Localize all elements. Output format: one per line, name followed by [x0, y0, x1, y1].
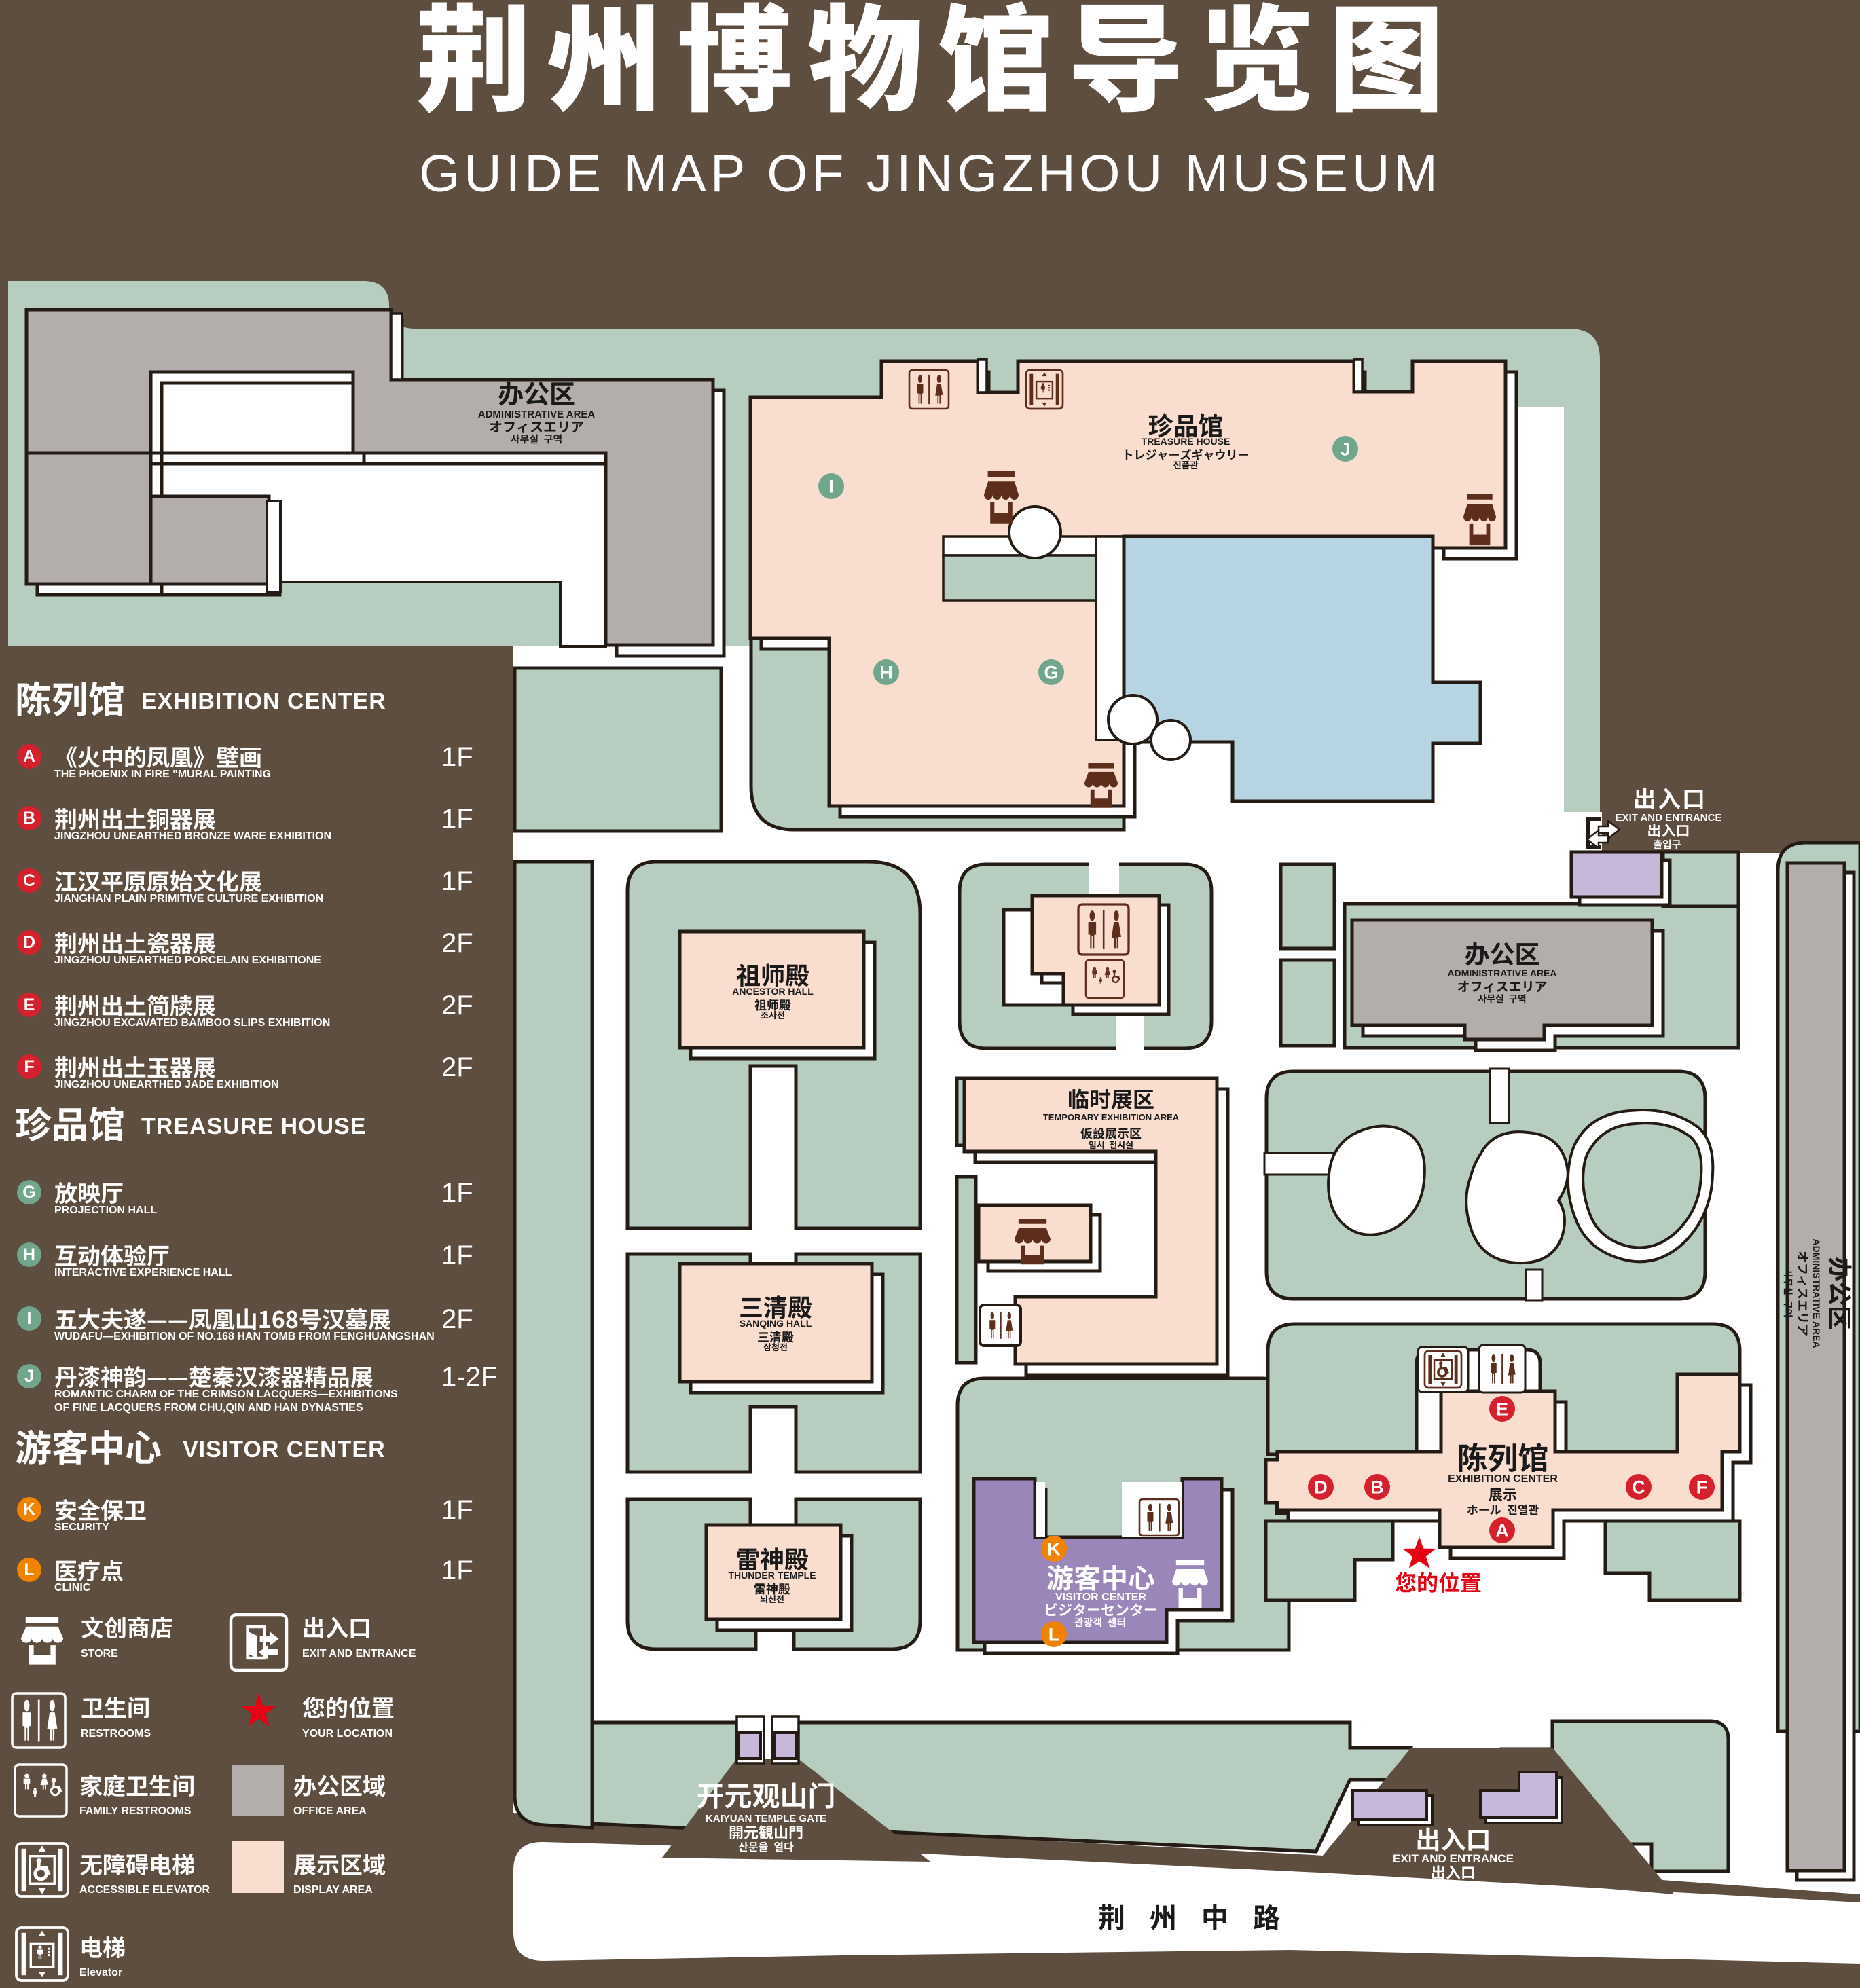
svg-text:1F: 1F [441, 1495, 473, 1525]
svg-text:ADMINISTRATIVE AREA: ADMINISTRATIVE AREA [478, 409, 596, 420]
svg-text:A: A [1495, 1520, 1509, 1541]
svg-text:K: K [23, 1500, 35, 1519]
svg-text:JINGZHOU EXCAVATED BAMBOO SLIP: JINGZHOU EXCAVATED BAMBOO SLIPS EXHIBITI… [54, 1017, 330, 1029]
svg-text:I: I [27, 1309, 32, 1328]
svg-text:JINGZHOU UNEARTHED JADE EXHIBI: JINGZHOU UNEARTHED JADE EXHIBITION [54, 1079, 279, 1090]
svg-text:1F: 1F [441, 742, 473, 772]
svg-text:STORE: STORE [81, 1648, 118, 1659]
svg-text:F: F [24, 1057, 34, 1076]
svg-text:YOUR LOCATION: YOUR LOCATION [302, 1728, 393, 1739]
svg-text:WUDAFU—EXHIBITION OF NO.168 HA: WUDAFU—EXHIBITION OF NO.168 HAN TOMB FRO… [54, 1331, 435, 1342]
svg-text:VISITOR CENTER: VISITOR CENTER [183, 1437, 386, 1462]
svg-text:1F: 1F [441, 1240, 473, 1270]
svg-text:K: K [1047, 1539, 1061, 1559]
svg-text:I: I [828, 476, 834, 496]
svg-text:C: C [1632, 1477, 1645, 1497]
svg-text:B: B [23, 809, 35, 828]
svg-text:SECURITY: SECURITY [54, 1522, 109, 1533]
svg-text:D: D [1314, 1477, 1328, 1497]
svg-text:ROMANTIC CHARM OF THE CRIMSON: ROMANTIC CHARM OF THE CRIMSON LACQUERS—E… [54, 1388, 398, 1400]
svg-text:H: H [879, 662, 893, 682]
svg-text:1F: 1F [441, 804, 473, 834]
svg-text:A: A [23, 747, 35, 766]
svg-text:H: H [23, 1245, 35, 1264]
svg-text:OFFICE AREA: OFFICE AREA [293, 1805, 367, 1817]
svg-text:2F: 2F [441, 1052, 473, 1082]
svg-text:KAIYUAN TEMPLE GATE: KAIYUAN TEMPLE GATE [706, 1813, 826, 1824]
svg-text:EXHIBITION CENTER: EXHIBITION CENTER [141, 688, 386, 714]
svg-text:E: E [24, 995, 35, 1014]
svg-text:EXIT AND ENTRANCE: EXIT AND ENTRANCE [1393, 1852, 1514, 1865]
svg-text:RESTROOMS: RESTROOMS [81, 1728, 151, 1739]
svg-text:GUIDE MAP OF JINGZHOU MUSEUM: GUIDE MAP OF JINGZHOU MUSEUM [419, 145, 1442, 203]
svg-text:OF FINE LACQUERS FROM CHU,QIN: OF FINE LACQUERS FROM CHU,QIN AND HAN DY… [54, 1402, 363, 1414]
svg-text:EXIT AND ENTRANCE: EXIT AND ENTRANCE [1616, 812, 1722, 824]
svg-text:D: D [23, 933, 35, 952]
svg-text:TREASURE HOUSE: TREASURE HOUSE [141, 1113, 366, 1139]
svg-text:PROJECTION HALL: PROJECTION HALL [54, 1204, 157, 1216]
svg-text:ADMINISTRATIVE AREA: ADMINISTRATIVE AREA [1811, 1239, 1822, 1348]
svg-text:CLINIC: CLINIC [54, 1582, 91, 1594]
svg-text:C: C [23, 871, 35, 890]
svg-text:DISPLAY AREA: DISPLAY AREA [293, 1884, 373, 1896]
svg-text:FAMILY RESTROOMS: FAMILY RESTROOMS [79, 1805, 192, 1817]
svg-text:J: J [24, 1367, 34, 1386]
svg-text:JINGZHOU UNEARTHED BRONZE WARE: JINGZHOU UNEARTHED BRONZE WARE EXHIBITIO… [54, 830, 331, 842]
svg-text:J: J [1340, 439, 1350, 459]
svg-text:THUNDER TEMPLE: THUNDER TEMPLE [728, 1570, 816, 1581]
svg-text:1F: 1F [441, 1178, 473, 1208]
svg-text:ADMINISTRATIVE AREA: ADMINISTRATIVE AREA [1448, 968, 1557, 978]
svg-text:VISITOR CENTER: VISITOR CENTER [1055, 1591, 1146, 1603]
svg-text:B: B [1370, 1477, 1384, 1497]
svg-text:2F: 2F [441, 991, 473, 1020]
svg-text:E: E [1496, 1399, 1508, 1419]
svg-text:G: G [1044, 662, 1058, 682]
svg-text:EXIT AND ENTRANCE: EXIT AND ENTRANCE [302, 1648, 416, 1659]
svg-text:1F: 1F [441, 1556, 473, 1585]
svg-text:TEMPORARY EXHIBITION AREA: TEMPORARY EXHIBITION AREA [1043, 1112, 1180, 1122]
svg-text:1-2F: 1-2F [441, 1362, 497, 1392]
svg-text:JIANGHAN PLAIN PRIMITIVE CULTU: JIANGHAN PLAIN PRIMITIVE CULTURE EXHIBIT… [54, 893, 323, 904]
svg-text:2F: 2F [441, 1304, 473, 1334]
svg-text:SANQING HALL: SANQING HALL [740, 1318, 812, 1329]
svg-text:THE PHOENIX IN FIRE "MURAL PAI: THE PHOENIX IN FIRE "MURAL PAINTING [54, 769, 271, 780]
svg-text:INTERACTIVE EXPERIENCE HALL: INTERACTIVE EXPERIENCE HALL [54, 1267, 232, 1278]
svg-text:2F: 2F [441, 928, 473, 958]
svg-text:ANCESTOR HALL: ANCESTOR HALL [732, 986, 814, 997]
svg-text:L: L [24, 1560, 34, 1579]
svg-text:G: G [22, 1183, 35, 1202]
svg-text:F: F [1696, 1477, 1708, 1497]
svg-text:ACCESSIBLE ELEVATOR: ACCESSIBLE ELEVATOR [79, 1884, 210, 1896]
svg-text:1F: 1F [441, 866, 473, 896]
svg-text:JINGZHOU UNEARTHED PORCELAIN E: JINGZHOU UNEARTHED PORCELAIN EXHIBITIONE [54, 955, 321, 966]
svg-text:EXHIBITION CENTER: EXHIBITION CENTER [1448, 1473, 1558, 1485]
svg-text:L: L [1048, 1624, 1060, 1644]
svg-text:Elevator: Elevator [79, 1967, 122, 1978]
svg-text:TREASURE HOUSE: TREASURE HOUSE [1142, 436, 1230, 447]
